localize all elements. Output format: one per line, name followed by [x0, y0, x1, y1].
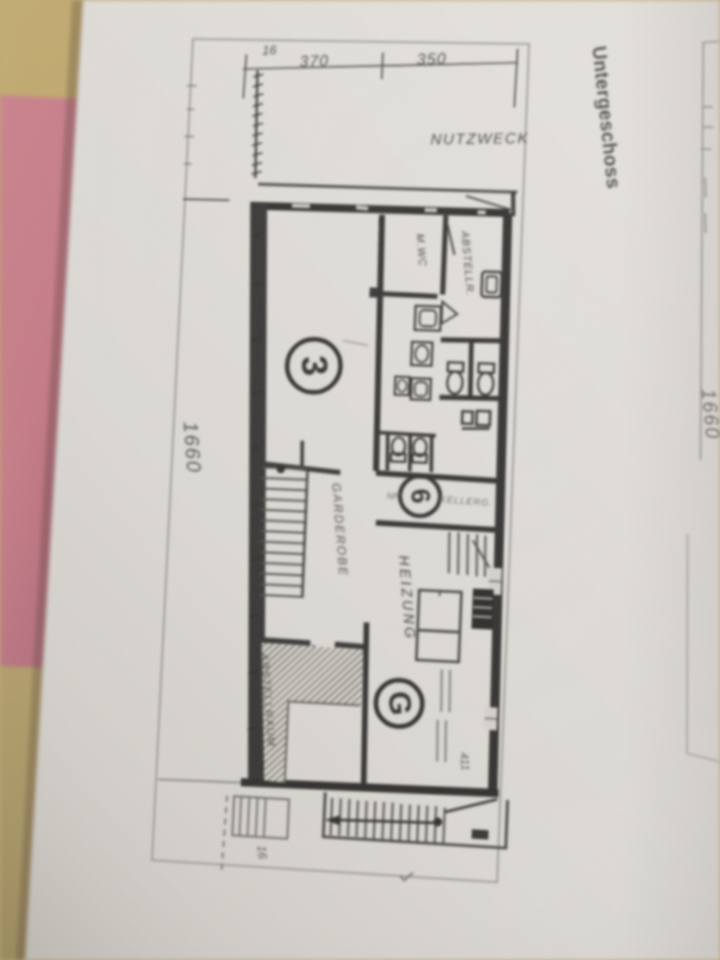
- svg-text:370: 370: [299, 53, 329, 71]
- svg-text:6: 6: [405, 488, 436, 505]
- svg-text:HEIZUNG: HEIZUNG: [396, 555, 419, 642]
- svg-text:350: 350: [417, 50, 447, 68]
- svg-text:G: G: [381, 690, 417, 716]
- svg-text:411: 411: [457, 752, 471, 771]
- svg-text:ABSTELLR.: ABSTELLR.: [458, 230, 475, 298]
- svg-text:1660: 1660: [179, 421, 204, 475]
- svg-text:M.WC: M.WC: [413, 233, 427, 267]
- svg-text:16: 16: [254, 845, 268, 860]
- svg-text:NR: NR: [387, 490, 401, 501]
- svg-text:Untergeschoss: Untergeschoss: [588, 45, 625, 190]
- svg-text:3: 3: [293, 354, 334, 377]
- svg-text:GARDEROBE: GARDEROBE: [329, 482, 349, 577]
- svg-text:16: 16: [262, 43, 276, 58]
- svg-text:KELLERG.: KELLERG.: [439, 494, 493, 509]
- svg-text:NUTZWECK: NUTZWECK: [430, 131, 529, 149]
